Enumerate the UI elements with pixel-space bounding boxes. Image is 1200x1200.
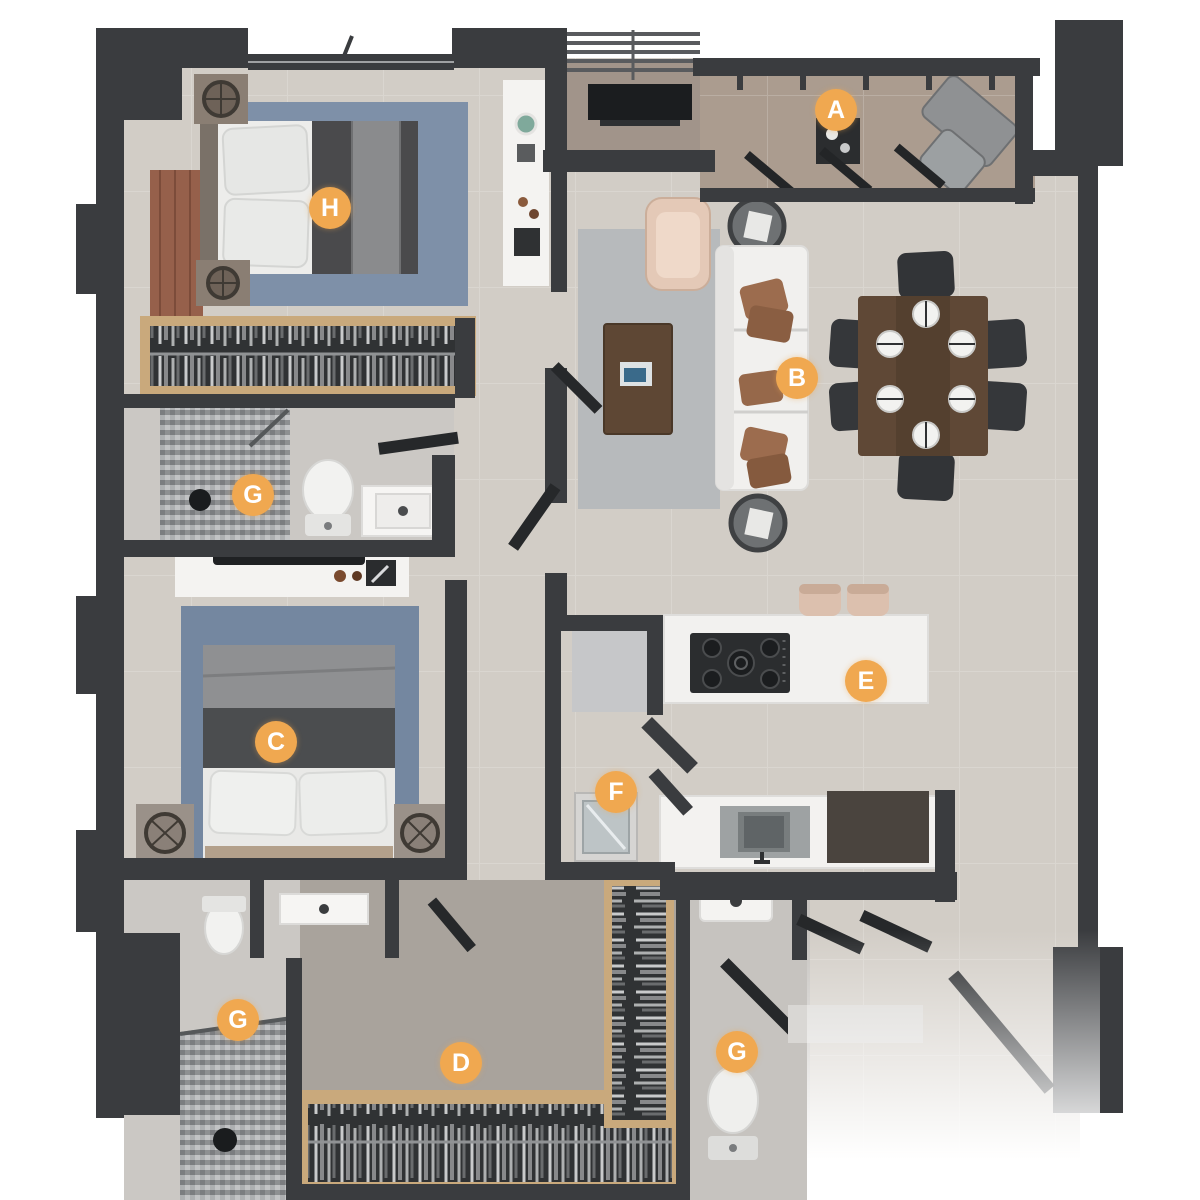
dining-chair [897, 251, 955, 300]
wall-shaft-right [647, 615, 663, 715]
outdoor-table [816, 118, 860, 164]
kitchen-counter [660, 791, 937, 868]
sofa [716, 246, 808, 490]
decor-plate [516, 114, 536, 134]
wall-toilet-left [676, 880, 690, 1200]
shower-drain-lower [213, 1128, 237, 1152]
wall-block-bottom-left [96, 933, 180, 1115]
toilet-guest [708, 1067, 758, 1160]
armchair [646, 198, 710, 290]
bed-main [200, 120, 418, 275]
wall-utility-bottom [545, 862, 675, 880]
wall-pilaster [76, 596, 96, 694]
toilet-upper [303, 460, 353, 536]
decor-item [529, 209, 539, 219]
wall-hall [545, 368, 567, 503]
wood-accent-floor [150, 170, 203, 320]
bar-stool-right [847, 584, 889, 616]
dining-chair [897, 451, 955, 502]
wall-closet-bath [124, 394, 455, 408]
wall-bath-right [432, 455, 455, 545]
decor-box [517, 144, 535, 162]
kitchen-island [664, 615, 928, 703]
wall-kitchen-bottom [660, 872, 957, 900]
wall-bottom [286, 1184, 690, 1200]
wall-niche-bottom [543, 150, 715, 172]
wall-block-top-right [1055, 20, 1123, 166]
floor-fade [807, 930, 1100, 1200]
wall-bedroom2-right [445, 580, 467, 862]
wall-right [1078, 166, 1098, 950]
coffee-table [604, 324, 672, 434]
wall-closet-end [455, 318, 475, 398]
wardrobe-vertical [604, 878, 674, 1128]
tv-living [588, 84, 692, 120]
floorplan-svg [0, 0, 1200, 1200]
console-dresser [503, 80, 549, 286]
wall-balcony-top [693, 58, 1040, 76]
wall-pilaster [76, 830, 96, 932]
wall-bedroom2-bottom [124, 858, 467, 880]
sofa-pillow [738, 369, 784, 407]
wall-shaft-top [545, 615, 663, 631]
wall-bath-bottom [124, 540, 455, 557]
decor-frame [514, 228, 540, 256]
side-table-bottom [731, 496, 785, 550]
wall-balcony-bottom [700, 188, 1035, 202]
nightstand-right [394, 804, 446, 862]
side-table-top [730, 199, 784, 253]
decor-item [518, 197, 528, 207]
washer [575, 793, 637, 861]
duct-shaft [572, 628, 648, 712]
bar-stool-left [799, 584, 841, 616]
wall-kitchen-right [935, 790, 955, 902]
wall-top [124, 28, 248, 68]
closet-main-bedroom [140, 316, 476, 396]
nightstand-top [194, 74, 248, 124]
counter-cabinet [827, 791, 929, 863]
vanity-lower [280, 894, 368, 924]
nightstand-bottom [196, 260, 250, 306]
shower-drain [189, 489, 211, 511]
shower-mosaic-lower [180, 1016, 292, 1200]
wall-pilaster [76, 204, 96, 294]
wall-balcony-right [1015, 58, 1033, 204]
floor-plan: ABCDEFGGGH [0, 0, 1200, 1200]
wall-partition [385, 880, 399, 958]
vanity-upper [362, 486, 444, 536]
wall-bath-dressing [286, 958, 302, 1200]
nightstand-left [136, 804, 194, 862]
wall-partition [250, 880, 264, 958]
bed-second [203, 645, 395, 864]
wall-hall [545, 573, 567, 615]
wall-shaft-left [545, 615, 561, 880]
